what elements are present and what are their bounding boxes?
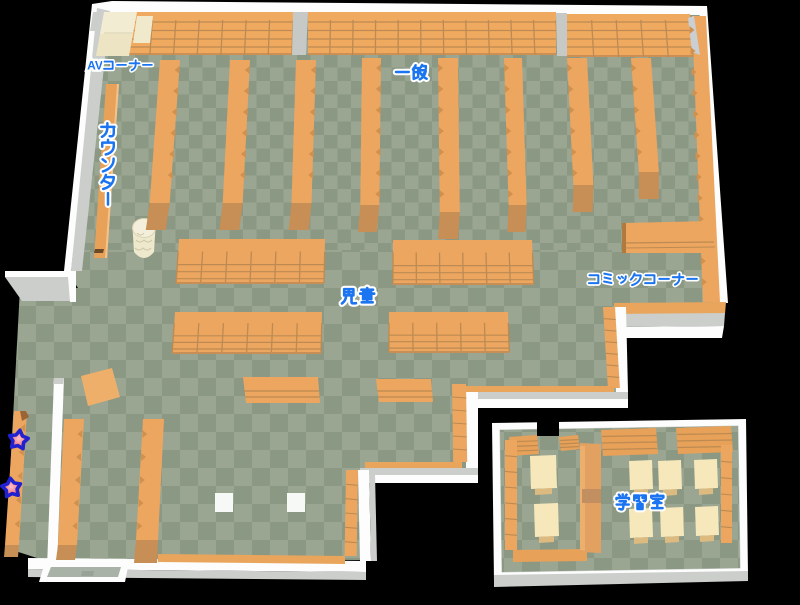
- svg-text:AV: AV: [87, 58, 103, 72]
